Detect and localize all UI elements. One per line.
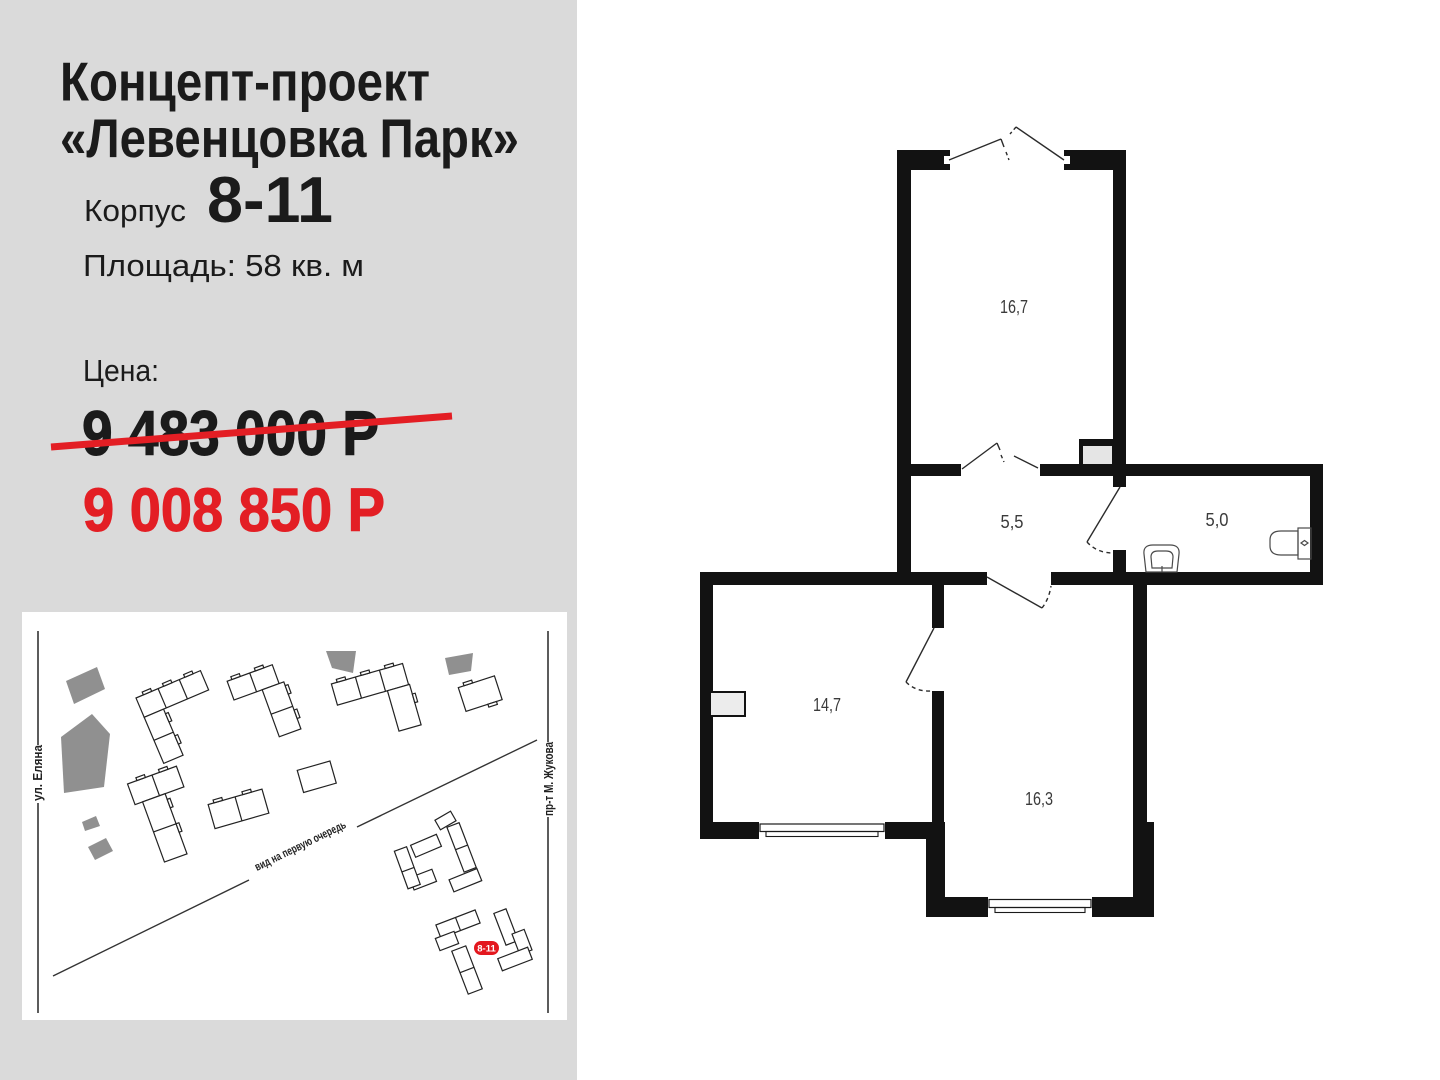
svg-text:ул. Еляна: ул. Еляна — [30, 744, 45, 801]
svg-text:16,7: 16,7 — [1000, 297, 1028, 317]
svg-text:9 008 850 Р: 9 008 850 Р — [83, 476, 385, 544]
svg-text:16,3: 16,3 — [1025, 789, 1053, 809]
svg-text:Корпус: Корпус — [84, 193, 186, 228]
svg-text:5,5: 5,5 — [1001, 512, 1024, 532]
svg-text:«Левенцовка Парк»: «Левенцовка Парк» — [60, 107, 519, 169]
svg-text:пр-т М. Жукова: пр-т М. Жукова — [541, 741, 556, 816]
svg-text:5,0: 5,0 — [1206, 510, 1229, 530]
svg-text:Цена:: Цена: — [83, 353, 159, 388]
svg-text:8-11: 8-11 — [477, 944, 496, 955]
svg-text:Площадь: 58 кв. м: Площадь: 58 кв. м — [83, 248, 364, 283]
svg-text:Концепт-проект: Концепт-проект — [60, 51, 430, 113]
svg-text:14,7: 14,7 — [813, 695, 841, 715]
svg-text:8-11: 8-11 — [207, 163, 333, 236]
